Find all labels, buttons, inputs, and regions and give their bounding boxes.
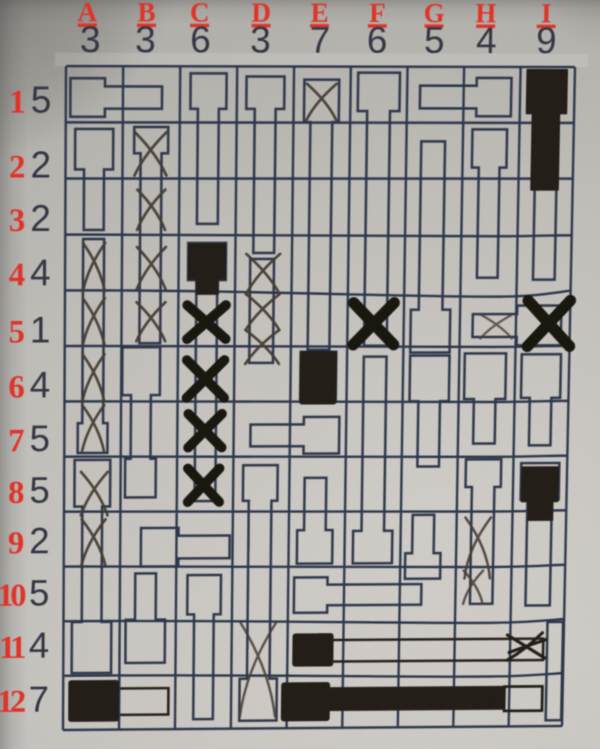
svg-text:3: 3	[135, 18, 156, 60]
svg-text:10: 10	[0, 577, 26, 613]
svg-text:5: 5	[29, 418, 50, 459]
svg-text:2: 2	[30, 197, 51, 239]
svg-text:4: 4	[476, 19, 497, 61]
svg-text:9: 9	[8, 525, 24, 561]
svg-text:8: 8	[8, 475, 24, 511]
svg-text:9: 9	[536, 19, 557, 61]
svg-text:11: 11	[0, 630, 26, 666]
svg-text:6: 6	[8, 369, 25, 405]
svg-text:2: 2	[29, 520, 50, 561]
svg-text:4: 4	[30, 252, 51, 294]
svg-text:5: 5	[29, 470, 50, 511]
svg-text:5: 5	[424, 19, 445, 61]
svg-text:5: 5	[31, 79, 52, 121]
svg-text:6: 6	[190, 18, 211, 60]
svg-text:2: 2	[30, 144, 51, 186]
svg-text:4: 4	[9, 257, 26, 294]
svg-text:3: 3	[80, 18, 101, 60]
svg-text:6: 6	[367, 19, 388, 61]
svg-text:1: 1	[30, 309, 51, 350]
svg-text:7: 7	[309, 19, 330, 61]
svg-text:2: 2	[9, 149, 26, 186]
svg-text:7: 7	[29, 679, 49, 720]
svg-text:5: 5	[29, 572, 50, 613]
svg-text:7: 7	[8, 423, 25, 459]
svg-text:4: 4	[30, 364, 51, 405]
svg-text:4: 4	[29, 625, 49, 666]
svg-text:5: 5	[8, 314, 25, 351]
svg-text:12: 12	[0, 684, 26, 720]
svg-text:1: 1	[9, 84, 26, 121]
svg-text:3: 3	[250, 19, 271, 61]
svg-text:3: 3	[9, 202, 26, 239]
